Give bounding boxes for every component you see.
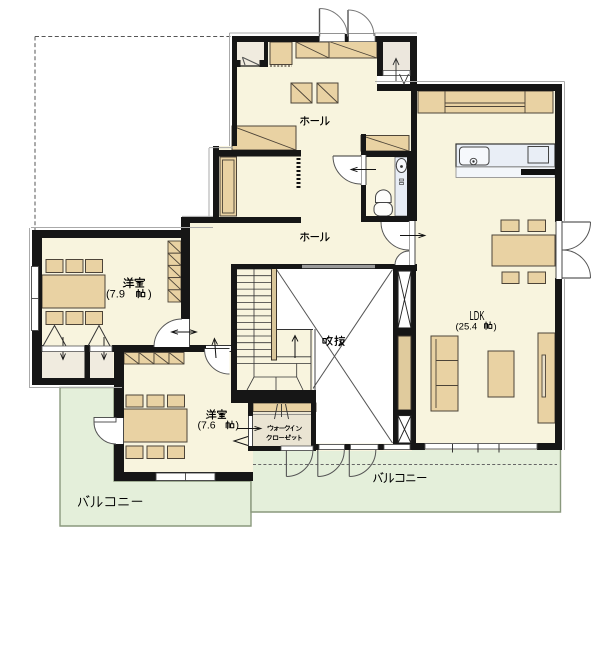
svg-text:(25.4: (25.4	[456, 322, 478, 333]
svg-text:): )	[236, 420, 240, 432]
svg-text:): )	[148, 289, 152, 301]
svg-text:(7.9: (7.9	[106, 289, 125, 301]
svg-text:(7.6: (7.6	[198, 420, 216, 432]
svg-text:): )	[494, 322, 497, 333]
